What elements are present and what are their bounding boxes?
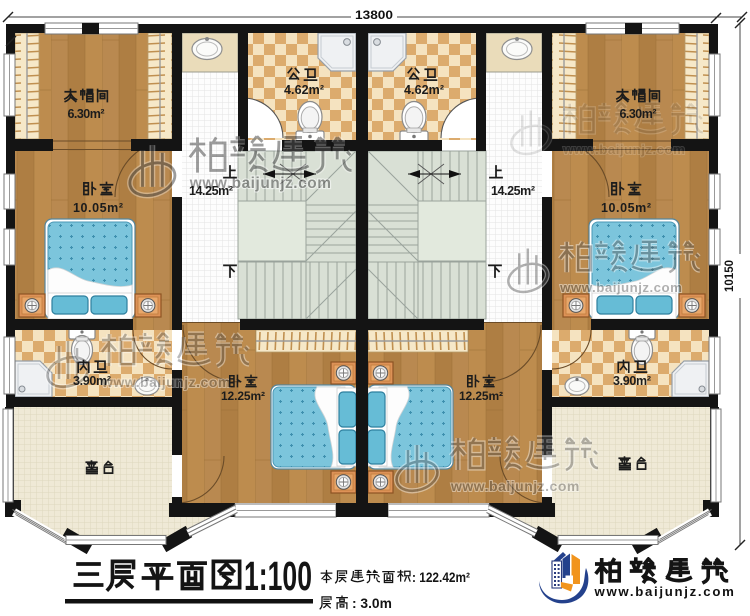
- svg-text:www.baijunjz.com: www.baijunjz.com: [593, 584, 735, 599]
- svg-text:6.30m²: 6.30m²: [620, 107, 657, 121]
- svg-text:4.62m²: 4.62m²: [284, 83, 324, 97]
- svg-text:www.baijunjz.com: www.baijunjz.com: [559, 280, 682, 295]
- svg-text:10150: 10150: [724, 260, 736, 292]
- svg-text:6.30m²: 6.30m²: [68, 107, 105, 121]
- svg-text:3.90m²: 3.90m²: [613, 374, 651, 388]
- svg-text:14.25m²: 14.25m²: [189, 184, 233, 198]
- svg-text:3.90m²: 3.90m²: [73, 374, 111, 388]
- svg-text:1:100: 1:100: [244, 553, 312, 599]
- svg-text:12.25m²: 12.25m²: [221, 389, 265, 403]
- svg-text:13800: 13800: [355, 10, 393, 22]
- svg-text:10.05m²: 10.05m²: [601, 201, 651, 215]
- svg-text:: 122.42m²: : 122.42m²: [412, 570, 470, 585]
- svg-text:4.62m²: 4.62m²: [404, 83, 444, 97]
- svg-text:www.baijunjz.com: www.baijunjz.com: [450, 478, 580, 494]
- svg-text:12.25m²: 12.25m²: [459, 389, 503, 403]
- svg-text:14.25m²: 14.25m²: [491, 184, 535, 198]
- svg-text:www.baijunjz.com: www.baijunjz.com: [562, 142, 685, 157]
- svg-text:10.05m²: 10.05m²: [73, 201, 123, 215]
- svg-text:www.baijunjz.com: www.baijunjz.com: [101, 374, 231, 390]
- svg-text:: 3.0m: : 3.0m: [352, 596, 392, 611]
